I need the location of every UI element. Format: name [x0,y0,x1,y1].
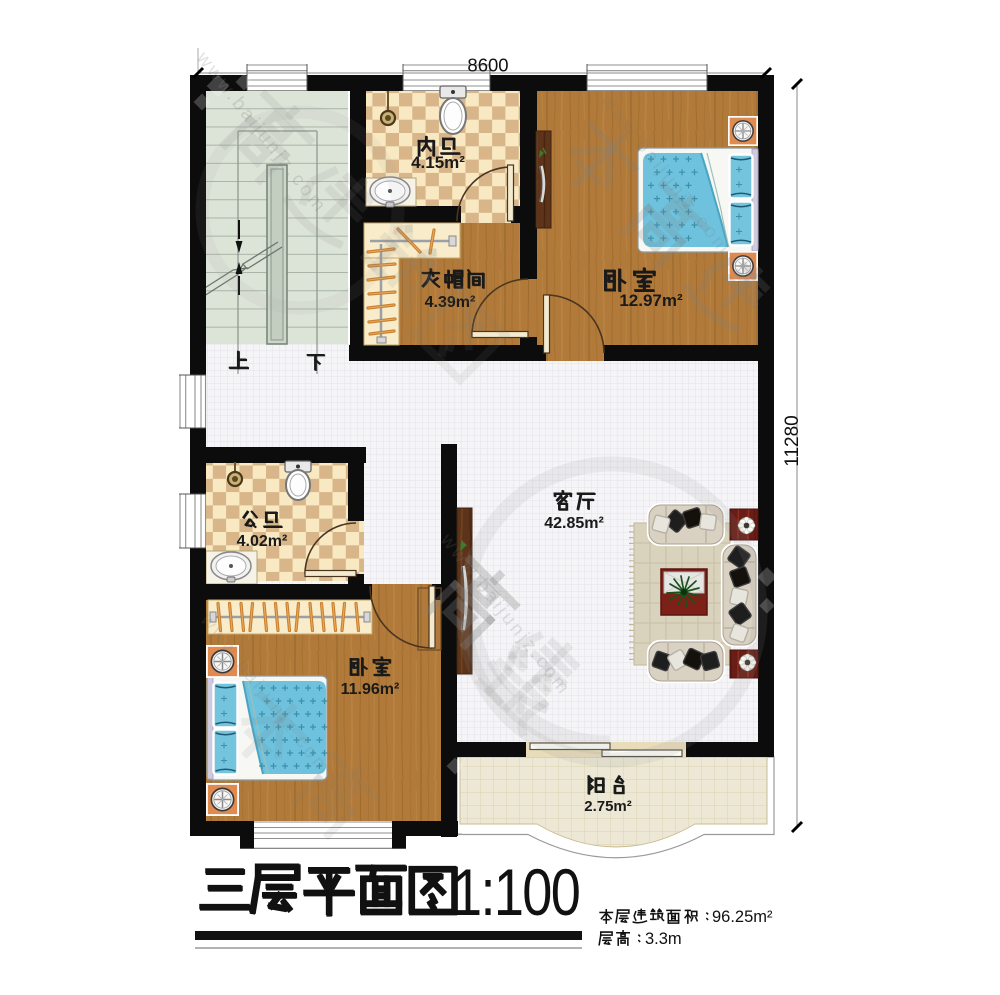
svg-text:8600: 8600 [467,55,508,76]
svg-text:4.15m²: 4.15m² [411,153,465,172]
svg-text:11280: 11280 [782,415,803,466]
svg-text:4.02m²: 4.02m² [237,533,288,550]
svg-text:2.75m²: 2.75m² [584,798,632,815]
svg-text:12.97m²: 12.97m² [619,291,683,310]
svg-text:3.3m: 3.3m [645,930,682,948]
svg-text:11.96m²: 11.96m² [341,681,400,698]
svg-text:1:100: 1:100 [452,855,579,929]
svg-text:96.25m²: 96.25m² [712,908,773,926]
svg-text:42.85m²: 42.85m² [544,515,604,532]
